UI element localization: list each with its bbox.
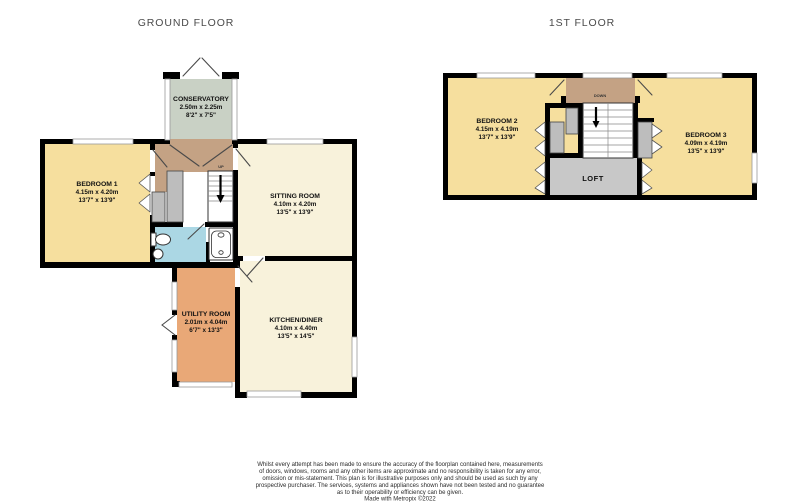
loft-label: LOFT	[582, 174, 604, 183]
room-sitting-room	[238, 144, 352, 256]
bedroom3-label: BEDROOM 3	[685, 132, 726, 139]
sitting-room-label: SITTING ROOM	[270, 193, 320, 200]
sink-icon	[153, 249, 163, 259]
conservatory-exterior-door-left-icon	[183, 58, 200, 76]
disclaimer-line: of doors, windows, rooms and any other i…	[259, 469, 541, 475]
bedroom3-metric: 4.09m x 4.19m	[685, 140, 728, 147]
landing-floor	[566, 78, 635, 103]
bedroom3-imperial: 13'5" x 13'9"	[688, 148, 725, 155]
bedroom1-metric: 4.15m x 4.20m	[76, 189, 119, 196]
stairs-up	[208, 171, 233, 222]
hallway-floor-strip	[155, 171, 168, 192]
first-floor-title: 1ST FLOOR	[549, 17, 615, 29]
bedroom2-imperial: 13'7" x 13'9"	[479, 134, 516, 141]
disclaimer: Whilst every attempt has been made to en…	[256, 462, 545, 503]
bedroom1-closet	[152, 192, 165, 222]
hall-closet	[167, 171, 183, 222]
conservatory-imperial: 8'2" x 7'5"	[186, 112, 216, 119]
kitchen-imperial: 13'5" x 14'5"	[278, 333, 315, 340]
landing-closet	[566, 108, 578, 134]
kitchen-label: KITCHEN/DINER	[269, 317, 322, 324]
utility-exterior-door-left-icon	[162, 315, 175, 325]
conservatory-exterior-door-right-icon	[202, 58, 219, 76]
ground-floor-title: GROUND FLOOR	[138, 17, 235, 29]
toilet-icon	[156, 234, 171, 245]
disclaimer-line: Whilst every attempt has been made to en…	[257, 462, 543, 468]
disclaimer-line: omission or mis-statement. This plan is …	[262, 476, 537, 482]
disclaimer-line: prospective purchaser. The services, sys…	[256, 483, 545, 489]
utility-metric: 2.01m x 4.04m	[185, 319, 228, 326]
bedroom3-closet	[638, 122, 652, 158]
bedroom2-closet	[550, 122, 564, 153]
first-floor-plan: BEDROOM 2 4.15m x 4.19m 13'7" x 13'9" BE…	[443, 73, 757, 200]
utility-label: UTILITY ROOM	[182, 311, 231, 318]
sitting-room-imperial: 13'5" x 13'9"	[277, 209, 314, 216]
floorplan-page: GROUND FLOOR 1ST FLOOR	[0, 0, 800, 503]
ground-floor-plan: CONSERVATORY 2.50m x 2.25m 8'2" x 7'5" B…	[40, 58, 357, 398]
bedroom2-metric: 4.15m x 4.19m	[476, 126, 519, 133]
sitting-room-metric: 4.10m x 4.20m	[274, 201, 317, 208]
bedroom1-label: BEDROOM 1	[76, 181, 117, 188]
bedroom2-label: BEDROOM 2	[476, 118, 517, 125]
utility-exterior-door-right-icon	[162, 325, 175, 335]
stairs-down-label: DOWN	[594, 93, 607, 98]
bedroom1-imperial: 13'7" x 13'9"	[79, 197, 116, 204]
conservatory-metric: 2.50m x 2.25m	[180, 104, 223, 111]
kitchen-metric: 4.10m x 4.40m	[275, 325, 318, 332]
disclaimer-line: as to their operability or efficiency ca…	[337, 490, 464, 496]
disclaimer-credit: Made with Metropix ©2022	[364, 496, 436, 503]
stairs-up-label: UP	[218, 164, 224, 169]
utility-imperial: 6'7" x 13'3"	[189, 327, 222, 334]
conservatory-label: CONSERVATORY	[173, 96, 229, 103]
stairs-down	[583, 103, 633, 158]
